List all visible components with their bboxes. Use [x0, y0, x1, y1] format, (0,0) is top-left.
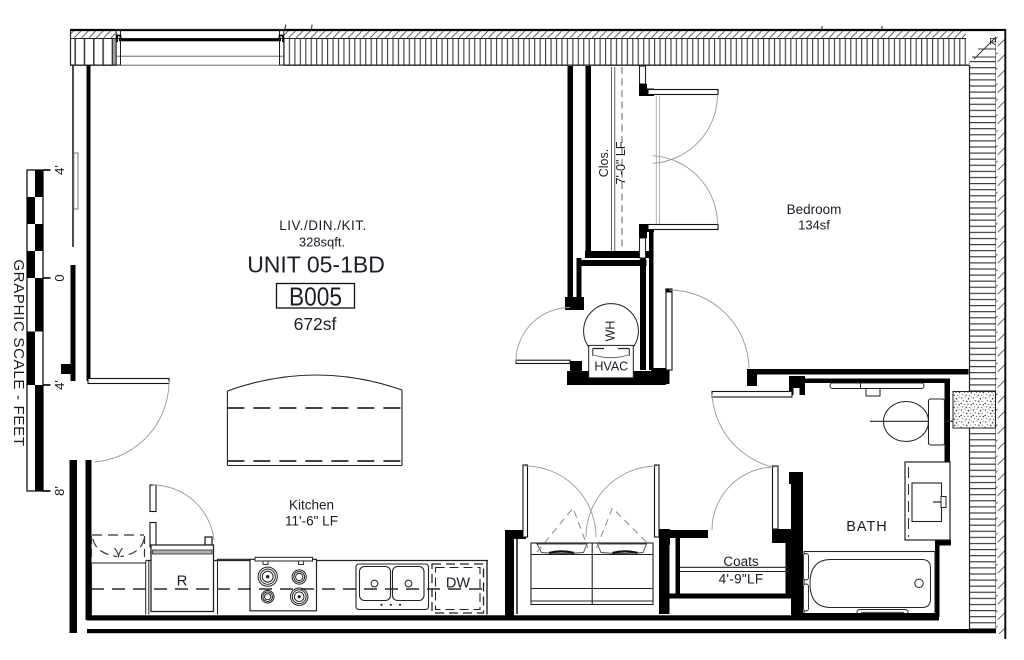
svg-text:11'-6" LF: 11'-6" LF	[285, 514, 338, 529]
svg-text:0: 0	[52, 274, 67, 281]
svg-text:B005: B005	[289, 282, 342, 312]
svg-text:Kitchen: Kitchen	[289, 498, 334, 513]
svg-text:GRAPHIC SCALE - FEET: GRAPHIC SCALE - FEET	[10, 259, 27, 446]
svg-text:4': 4'	[52, 165, 67, 175]
svg-text:UNIT 05-1BD: UNIT 05-1BD	[247, 252, 385, 278]
svg-text:328sqft.: 328sqft.	[299, 235, 345, 250]
svg-text:4': 4'	[52, 380, 67, 390]
svg-text:Clos.: Clos.	[597, 149, 611, 177]
svg-text:R: R	[177, 573, 188, 590]
svg-text:672sf: 672sf	[294, 314, 337, 334]
svg-text:BATH: BATH	[846, 519, 888, 535]
svg-text:134sf: 134sf	[798, 218, 830, 233]
svg-text:4'-9"LF: 4'-9"LF	[719, 572, 764, 587]
svg-text:Bedroom: Bedroom	[787, 202, 842, 217]
svg-text:8': 8'	[52, 486, 67, 496]
svg-text:Coats: Coats	[723, 554, 759, 569]
svg-text:7'-0" LF: 7'-0" LF	[614, 141, 628, 184]
svg-text:HVAC: HVAC	[594, 360, 628, 374]
svg-text:LIV./DIN./KIT.: LIV./DIN./KIT.	[279, 218, 367, 233]
svg-text:WH: WH	[603, 321, 617, 342]
